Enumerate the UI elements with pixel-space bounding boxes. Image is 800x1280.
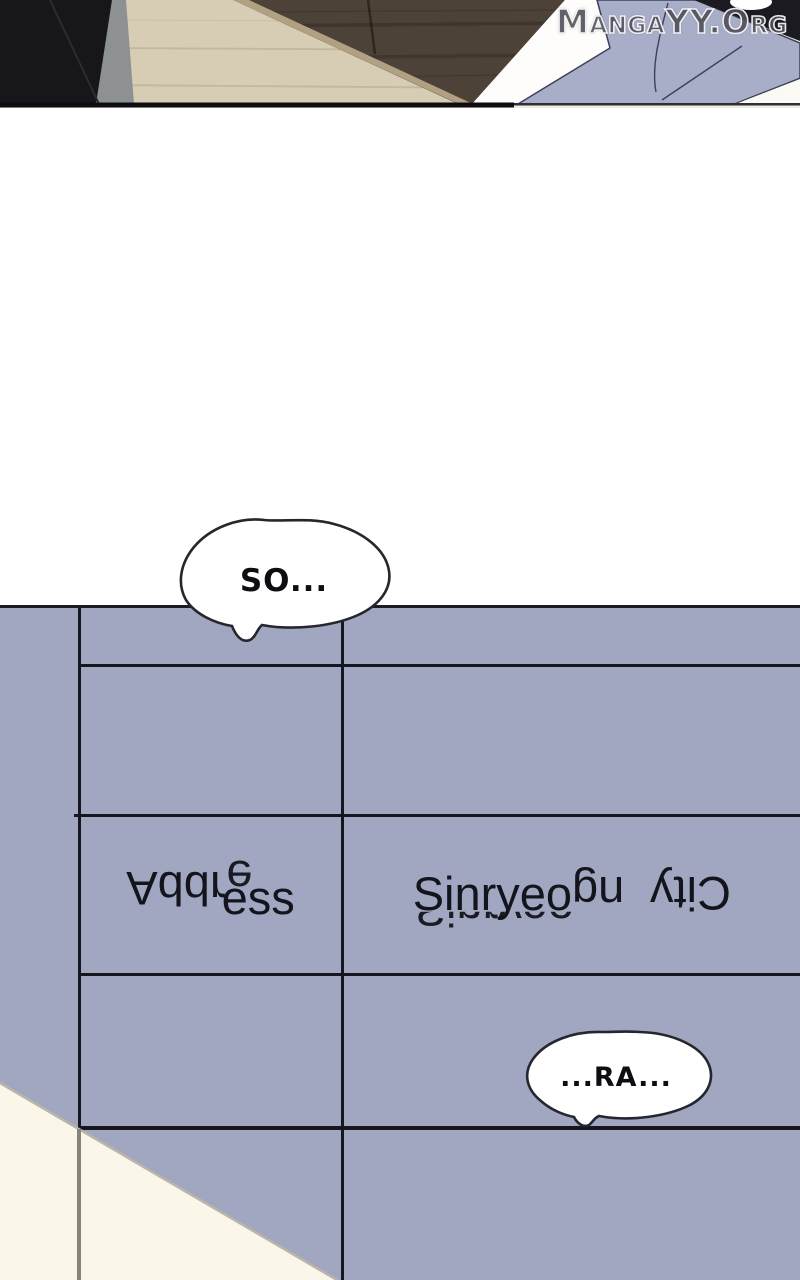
bubble-ra-text: ...RA... xyxy=(516,1062,716,1093)
panel-border-thick xyxy=(0,103,514,108)
bubble-so-text: SO... xyxy=(172,563,396,599)
city-rotated-city: City xyxy=(650,866,731,921)
address-label-cell: Addreess xyxy=(80,814,341,973)
corner-paper xyxy=(0,1081,340,1280)
grid-vline-1-faded xyxy=(77,1129,81,1280)
panel-top-edge-line xyxy=(0,605,800,608)
manga-page: MangaYY.Org Addreess Sinryeo Sinryeo ngC… xyxy=(0,0,800,1280)
address-value-cell: Sinryeo Sinryeo ngCity xyxy=(344,814,800,973)
grid-hline-3 xyxy=(78,973,800,976)
site-watermark: MangaYY.Org xyxy=(556,2,788,41)
form-panel: Addreess Sinryeo Sinryeo ngCity xyxy=(0,605,800,1280)
speech-bubble-so: SO... xyxy=(172,512,396,650)
address-normal-segment: ess xyxy=(222,870,295,925)
city-normal-wrap: Sinryeo Sinryeo xyxy=(413,866,572,921)
grid-hline-1 xyxy=(78,664,800,667)
speech-bubble-ra: ...RA... xyxy=(516,1026,716,1128)
figure-silhouette xyxy=(0,0,112,104)
address-flipped-segment: Addr xyxy=(126,861,225,916)
city-rotated-ng: ng xyxy=(572,866,624,921)
panel-border-thin xyxy=(514,103,800,106)
